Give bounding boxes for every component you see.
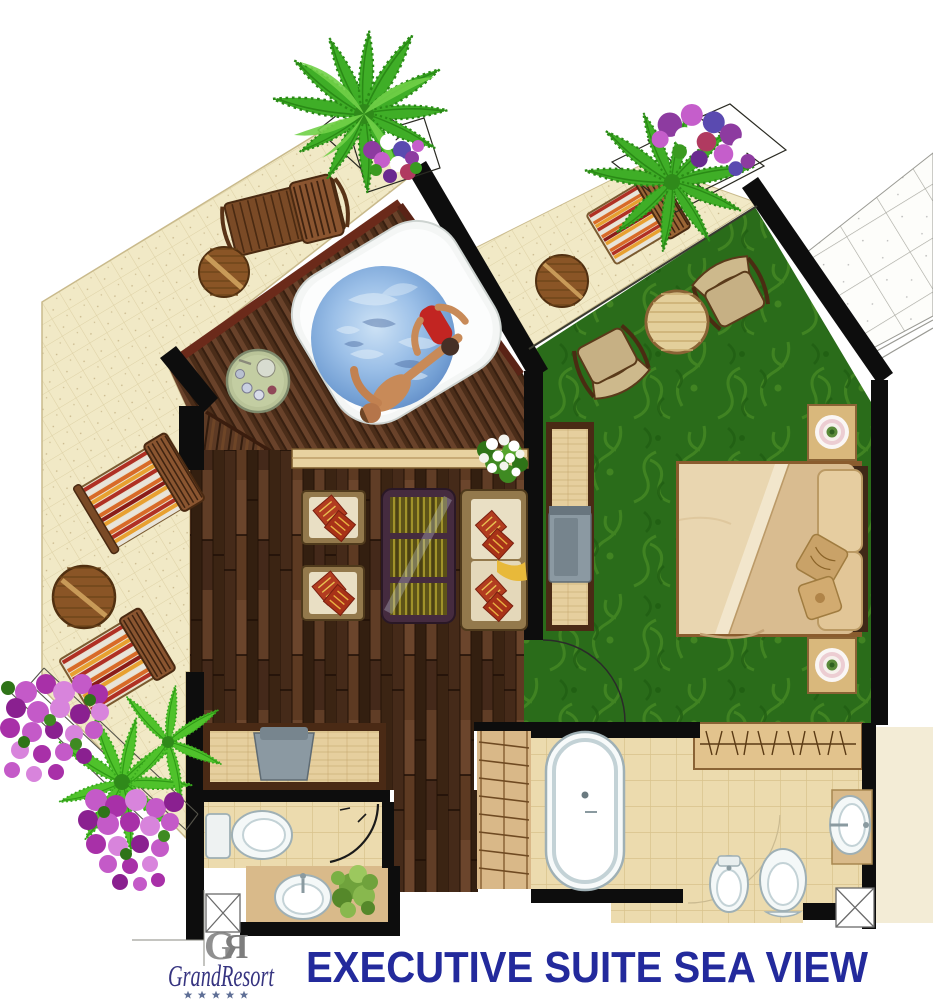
svg-text:EXECUTIVE SUITE SEA VIEW: EXECUTIVE SUITE SEA VIEW: [306, 943, 868, 992]
svg-text:GrandResort: GrandResort: [168, 958, 275, 993]
